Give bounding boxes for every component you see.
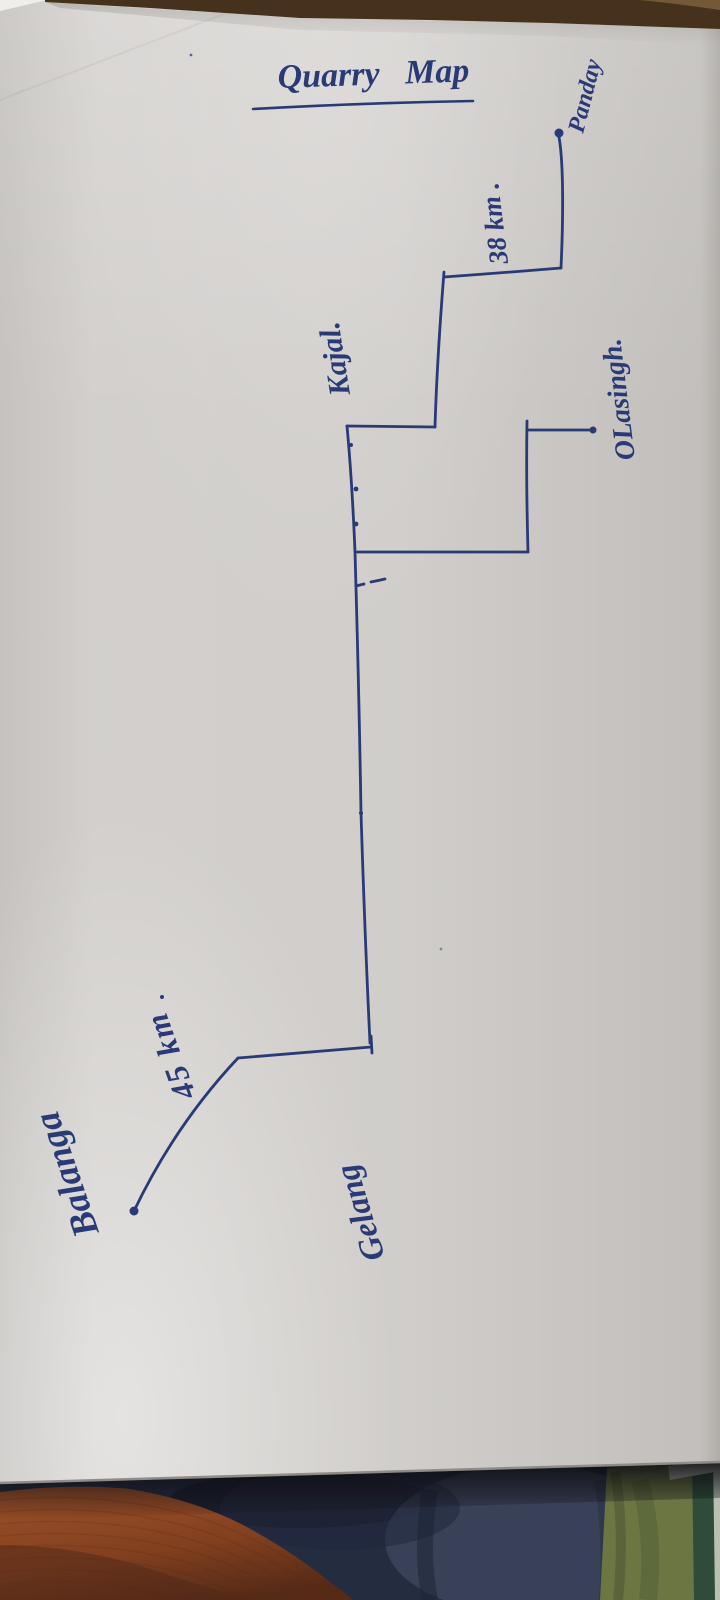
svg-text:Quarry Map: Quarry Map [277,52,470,96]
